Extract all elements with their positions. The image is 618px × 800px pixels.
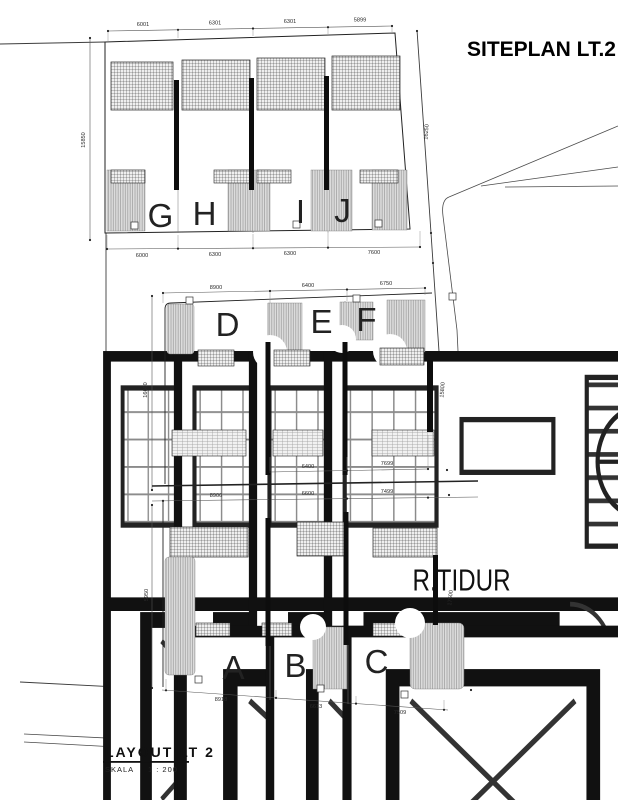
dim-topb-2: 6300 <box>209 252 221 258</box>
unit-letter-h: H <box>193 195 218 232</box>
legend-underline <box>103 761 189 763</box>
dim-left-bottom: 5950 <box>144 589 150 601</box>
dim-topb-3: 6300 <box>284 251 296 257</box>
dim-bott-2: 6600 <box>302 491 314 497</box>
legend-title: LAYOUT LT 2 <box>105 744 215 760</box>
dim-left-middle: 16600 <box>143 382 149 398</box>
dim-midb-2: 7699 <box>381 461 393 467</box>
siteplan-drawing: R.TIDUR R.TIDUR R.DUDUK R.TIDUR R.TIDUR <box>0 0 618 800</box>
page-title: SITEPLAN LT.2 <box>467 38 616 61</box>
dim-right-top: 16250 <box>423 124 430 140</box>
unit-letter-e: E <box>310 303 333 340</box>
dim-mid-2: 6400 <box>302 283 314 289</box>
dim-topb-1: 6000 <box>136 253 148 259</box>
dim-bott-3: 7499 <box>381 489 393 495</box>
dim-midb-1: 6400 <box>302 464 314 470</box>
dim-left-top: 15850 <box>81 132 87 148</box>
siteplan-page: R.TIDUR R.TIDUR R.DUDUK R.TIDUR R.TIDUR <box>0 0 618 800</box>
unit-letter-c: C <box>365 643 390 680</box>
dim-botb-3: 7509 <box>394 710 406 716</box>
unit-letter-a: A <box>222 649 245 686</box>
unit-letter-j: J <box>334 192 352 229</box>
dim-top-2: 6301 <box>209 21 221 27</box>
unit-letter-f: F <box>356 301 377 338</box>
unit-letter-d: D <box>216 306 241 343</box>
unit-letter-g: G <box>148 197 175 234</box>
dim-topb-4: 7600 <box>368 250 380 256</box>
dim-top-4: 5899 <box>354 18 366 24</box>
legend-scale-label: SKALA <box>105 765 134 774</box>
dim-top-1: 6001 <box>137 22 149 28</box>
dim-bott-1: 8900 <box>210 493 222 499</box>
legend-scale-value: 1 : 200 <box>148 765 178 774</box>
unit-letter-i: I <box>296 193 306 230</box>
unit-letter-b: B <box>284 647 307 684</box>
dim-mid-3: 6750 <box>380 281 392 287</box>
patio-hatch <box>172 430 434 456</box>
dim-botb-2: 6613 <box>310 704 322 710</box>
dim-top-3: 6301 <box>284 19 296 25</box>
dim-botb-1: 8918 <box>215 697 227 703</box>
dim-mid-1: 8900 <box>210 285 222 291</box>
